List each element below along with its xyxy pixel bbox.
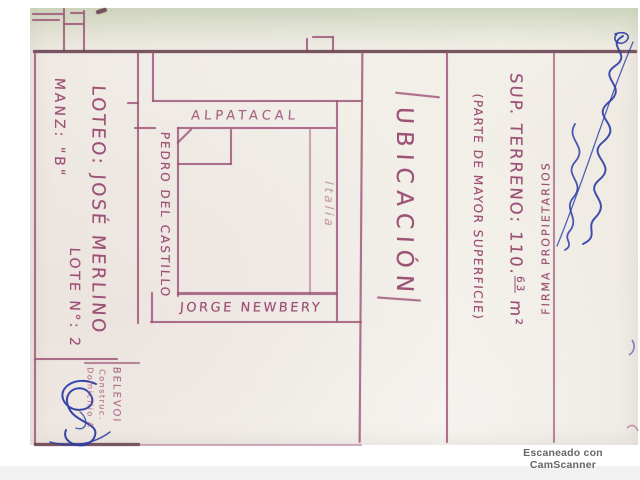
street-label-pedro-del-castillo: PEDRO DEL CASTILLO [158,131,172,298]
lot-outline [177,163,232,165]
stamp-box-line [84,362,140,364]
block-outline [177,127,179,297]
manz-label: MANZ: "B" [51,77,67,178]
block-outline [177,127,336,129]
stamp-line: Domicilio A [86,367,95,429]
plan-fragment-line [70,12,84,14]
scanned-plan-page: MANZ: "B" LOTEO: JOSÉ MERLINO LOTE N°: 2… [0,0,640,480]
street-line [134,127,156,129]
street-line [177,292,337,295]
block-outline [309,129,311,295]
street-line [151,292,153,323]
street-line [152,100,362,102]
street-label-jorge-newbery: JORGE NEWBERY [179,301,322,316]
sup-terreno-label: SUP. TERRENO: 110.63 m² [507,73,526,328]
loteo-label: LOTEO: JOSÉ MERLINO [88,85,109,336]
camscanner-watermark: Escaneado con CamScanner [498,447,628,471]
panel-divider-line [34,358,118,360]
parte-label: (PARTE DE MAYOR SUPERFICIE) [471,93,485,321]
street-line [150,321,362,323]
street-label-alpatacal: ALPATACAL [191,109,300,124]
plan-fragment-line [32,13,64,15]
street-line [336,100,338,322]
stamp-line: BELEVOI [111,366,122,423]
street-line [152,52,154,102]
plan-fragment-line [32,19,60,21]
plan-fragment-line [63,8,65,52]
border-line-bottom-faint [140,444,362,446]
section-divider-line [446,52,448,443]
lote-label: LOTE N°: 2 [66,247,82,349]
plan-fragment-line [312,36,334,38]
sup-terreno-unit: m² [507,292,526,327]
sup-terreno-text: SUP. TERRENO: 110. [507,73,526,277]
location-title: UBICACIÓN [391,106,417,299]
owner-signature-scribble [545,28,640,253]
plan-fragment-line [83,10,85,52]
lot-outline [230,129,232,165]
sup-terreno-fraction: 63 [514,276,525,294]
street-label-italia: Italia [322,181,336,229]
edge-fragment-marks [624,338,640,438]
street-line [127,102,139,104]
street-line [137,52,139,324]
plan-fragment-line [63,23,84,25]
stamp-line: Construc. [98,369,107,421]
